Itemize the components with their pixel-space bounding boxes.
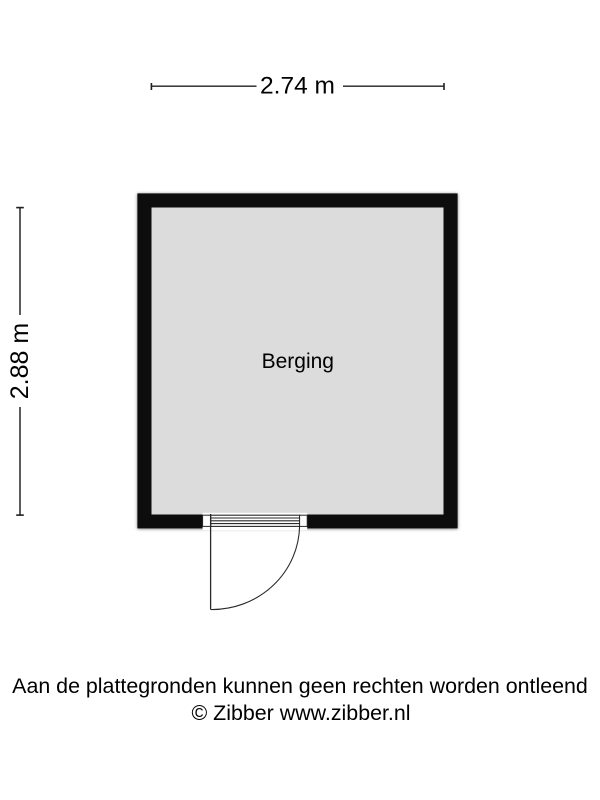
svg-text:Berging: Berging bbox=[262, 350, 334, 373]
svg-text:2.74 m: 2.74 m bbox=[260, 73, 335, 100]
svg-text:© Zibber www.zibber.nl: © Zibber www.zibber.nl bbox=[191, 701, 410, 725]
svg-text:2.88 m: 2.88 m bbox=[6, 323, 34, 399]
svg-text:Aan de plattegronden kunnen ge: Aan de plattegronden kunnen geen rechten… bbox=[12, 674, 588, 698]
